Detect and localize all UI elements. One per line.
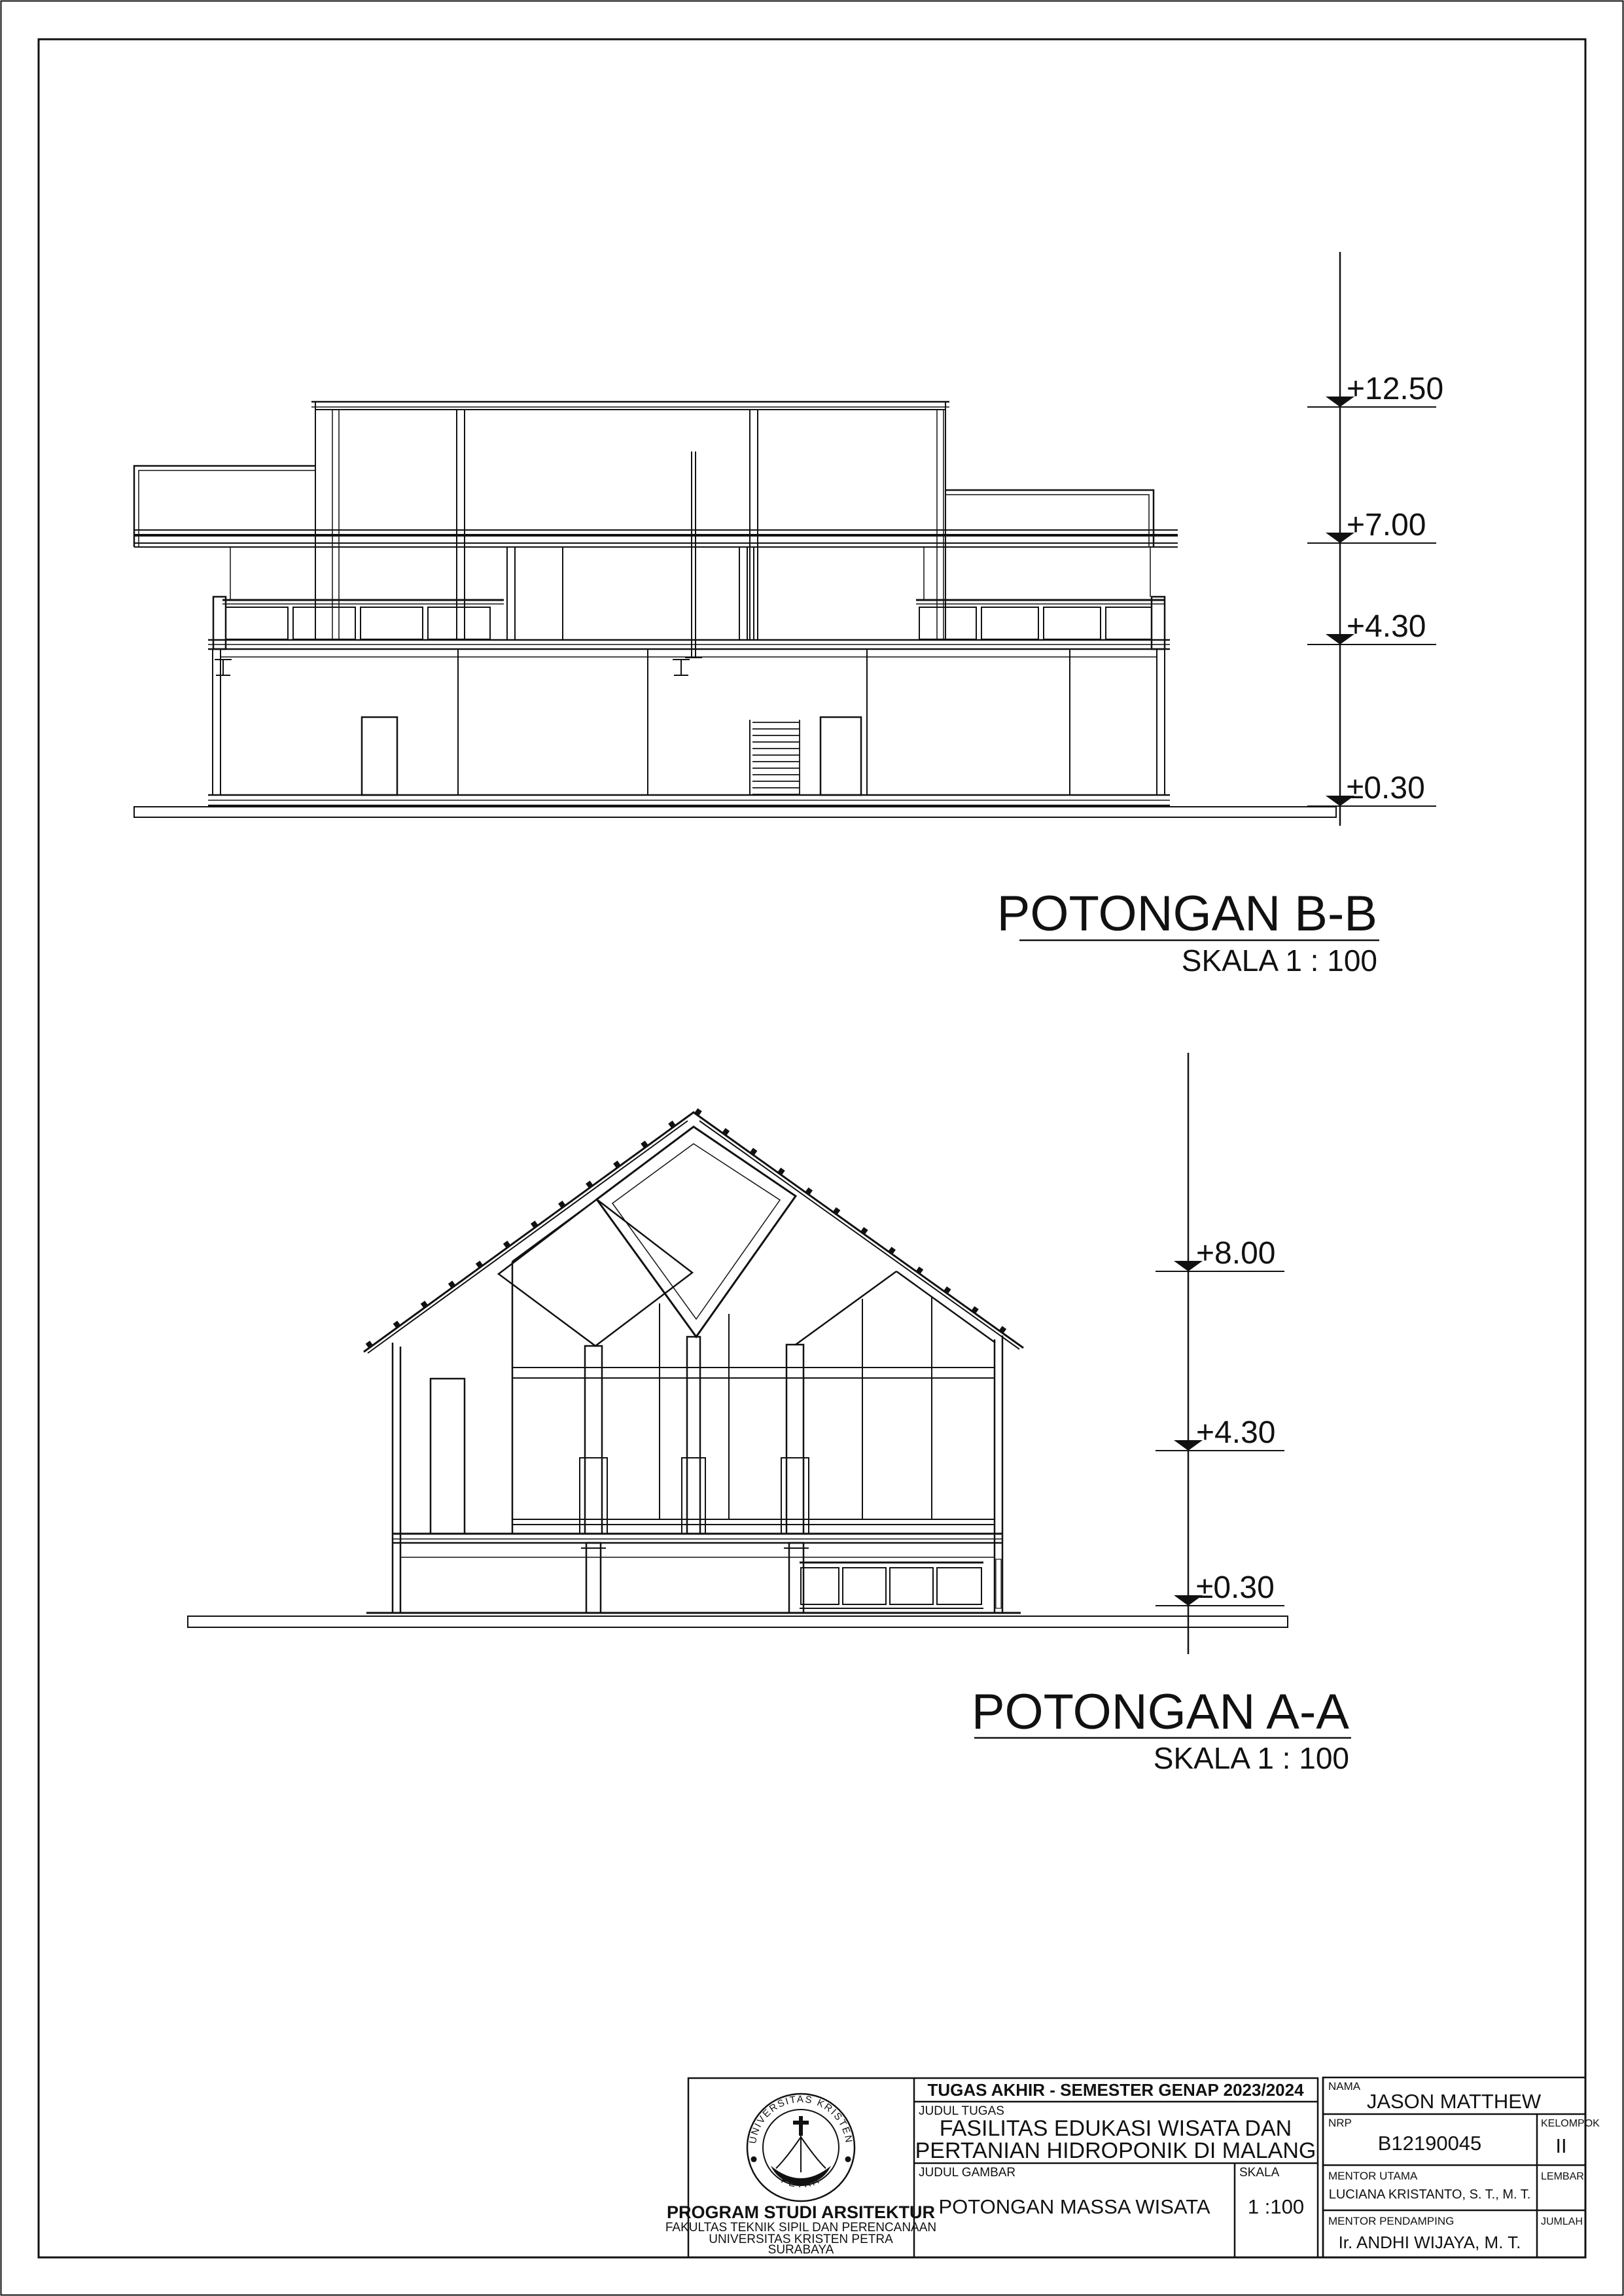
title-block: UNIVERSITAS KRISTEN PETRA PROGRAM STUDI … xyxy=(665,2077,1600,2257)
bb-door-right xyxy=(821,717,861,795)
bb-caption: POTONGAN B-B SKALA 1 : 100 xyxy=(997,886,1379,978)
judul-tugas-line2: PERTANIAN HIDROPONIK DI MALANG xyxy=(915,2138,1316,2163)
bb-floor-slab xyxy=(208,640,1170,649)
bb-door-left xyxy=(362,717,397,795)
aa-diamond-window xyxy=(597,1127,796,1337)
elevation-label: +4.30 xyxy=(1196,1415,1275,1450)
bb-elev-430: +4.30 xyxy=(1307,609,1436,645)
judul-tugas-line1: FASILITAS EDUKASI WISATA DAN xyxy=(940,2116,1292,2141)
aa-elevation-dimline: +8.00 +4.30 ±0.30 xyxy=(1156,1053,1284,1654)
judul-gambar-value: POTONGAN MASSA WISATA xyxy=(938,2195,1210,2218)
kelompok-value: II xyxy=(1555,2134,1566,2157)
aa-ground xyxy=(188,1613,1288,1627)
aa-elev-800: +8.00 xyxy=(1156,1236,1284,1271)
bb-second-floor xyxy=(213,547,1165,649)
bb-staircase xyxy=(750,720,800,795)
section-bb-drawing: +12.50 +7.00 +4.30 ±0.30 POTONGAN B-B xyxy=(134,252,1443,978)
mentor-pendamping-label: MENTOR PENDAMPING xyxy=(1328,2215,1454,2227)
bb-ground-hatch xyxy=(134,807,1336,817)
elevation-label: +8.00 xyxy=(1196,1236,1275,1271)
bb-elev-700: +7.00 xyxy=(1307,508,1436,543)
kelompok-label: KELOMPOK xyxy=(1541,2118,1600,2129)
institution-block: PROGRAM STUDI ARSITEKTUR FAKULTAS TEKNIK… xyxy=(665,2202,936,2257)
skala-value: 1 :100 xyxy=(1248,2195,1304,2218)
titleblock-header: TUGAS AKHIR - SEMESTER GENAP 2023/2024 xyxy=(927,2080,1304,2100)
aa-ground-hatch xyxy=(188,1616,1288,1627)
logo-dot-right xyxy=(845,2157,851,2163)
elevation-label: ±0.30 xyxy=(1347,771,1425,805)
section-aa-drawing: +8.00 +4.30 ±0.30 POTONGAN A-A SKALA 1 :… xyxy=(188,1053,1351,1775)
aa-roof xyxy=(364,1110,1023,1534)
elevation-label: +4.30 xyxy=(1347,609,1426,644)
institution-kota: SURABAYA xyxy=(768,2243,834,2257)
section-bb-title: POTONGAN B-B xyxy=(997,886,1377,942)
page-border xyxy=(1,1,1623,2295)
mentor-pendamping-value: Ir. ANDHI WIJAYA, M. T. xyxy=(1339,2233,1521,2252)
aa-diamond-louver xyxy=(499,1199,692,1346)
aa-walls xyxy=(393,1335,1002,1613)
bb-balustrade-right xyxy=(919,607,1152,639)
nama-label: NAMA xyxy=(1328,2080,1361,2093)
elevation-label: +7.00 xyxy=(1347,508,1426,542)
logo-dot-left xyxy=(751,2157,757,2163)
aa-ground-floor xyxy=(400,1543,1001,1613)
lembar-label: LEMBAR xyxy=(1541,2171,1584,2182)
bb-elev-030: ±0.30 xyxy=(1307,771,1436,806)
nama-value: JASON MATTHEW xyxy=(1367,2090,1542,2113)
mentor-utama-label: MENTOR UTAMA xyxy=(1328,2170,1418,2182)
bb-balustrade-left xyxy=(226,607,490,639)
jumlah-label: JUMLAH xyxy=(1541,2216,1583,2227)
aa-caption: POTONGAN A-A SKALA 1 : 100 xyxy=(972,1684,1351,1775)
logo-cross-icon xyxy=(793,2116,809,2136)
aa-vent-louvers xyxy=(800,1563,983,1608)
aa-elev-030: ±0.30 xyxy=(1156,1570,1284,1606)
nrp-value: B12190045 xyxy=(1378,2132,1482,2155)
section-aa-title: POTONGAN A-A xyxy=(972,1684,1349,1740)
aa-door xyxy=(431,1379,465,1534)
mentor-utama-value: LUCIANA KRISTANTO, S. T., M. T. xyxy=(1329,2187,1531,2202)
skala-label: SKALA xyxy=(1239,2166,1280,2180)
aa-elev-430: +4.30 xyxy=(1156,1415,1284,1451)
bb-elev-1250: +12.50 xyxy=(1307,372,1443,407)
bb-ground-floor xyxy=(213,649,1165,795)
institution-program: PROGRAM STUDI ARSITEKTUR xyxy=(667,2202,935,2222)
aa-glazing xyxy=(512,1297,995,1534)
aa-floor-slab xyxy=(393,1534,1002,1543)
elevation-label: +12.50 xyxy=(1347,372,1443,406)
bb-elevation-dimline: +12.50 +7.00 +4.30 ±0.30 xyxy=(1307,252,1443,826)
elevation-label: ±0.30 xyxy=(1196,1570,1275,1605)
drawing-sheet: +12.50 +7.00 +4.30 ±0.30 POTONGAN B-B xyxy=(0,0,1624,2296)
bb-ground xyxy=(134,795,1336,817)
section-bb-scale: SKALA 1 : 100 xyxy=(1182,944,1377,978)
section-aa-scale: SKALA 1 : 100 xyxy=(1154,1741,1349,1775)
judul-gambar-label: JUDUL GAMBAR xyxy=(919,2166,1015,2180)
bb-side-roofs xyxy=(134,466,1178,547)
nrp-label: NRP xyxy=(1328,2117,1352,2129)
logo-sails-icon xyxy=(776,2136,826,2172)
university-logo: UNIVERSITAS KRISTEN PETRA xyxy=(747,2094,855,2201)
